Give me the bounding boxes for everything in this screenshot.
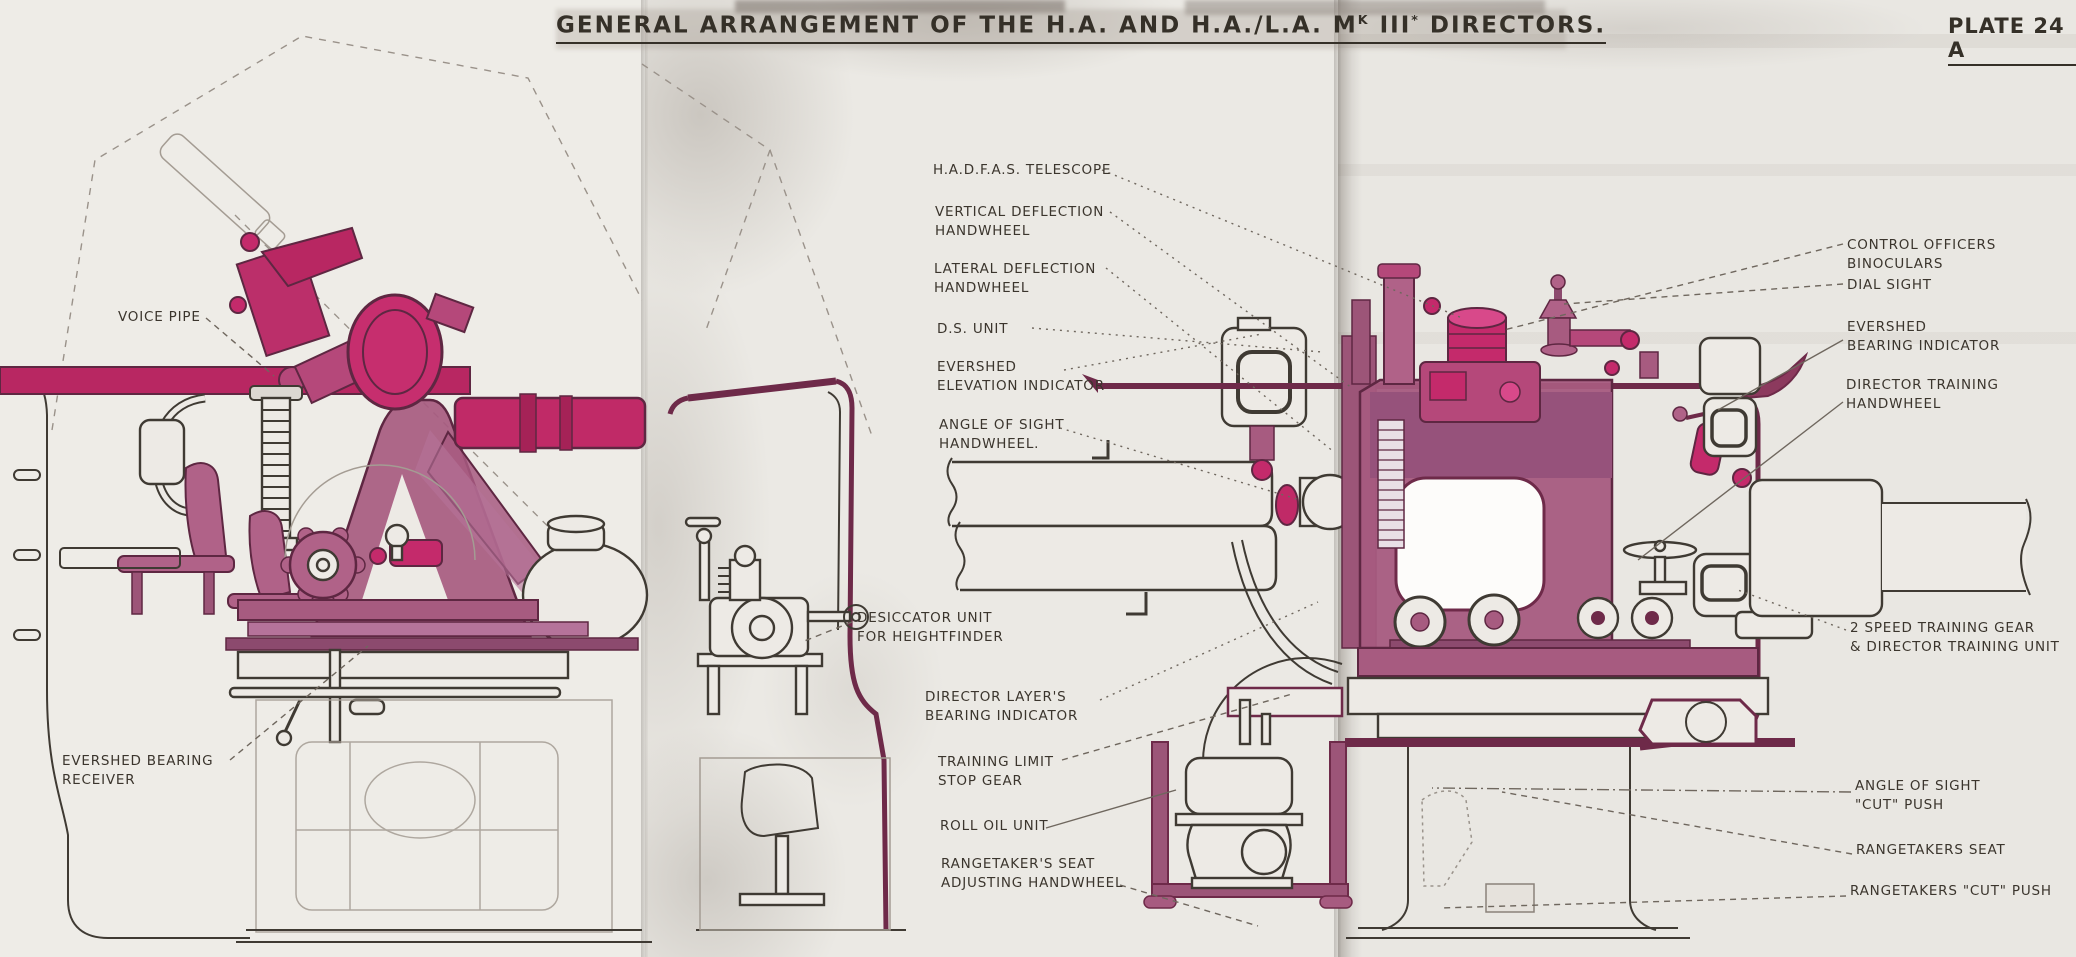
title-prefix: GENERAL ARRANGEMENT OF THE H.A. AND H.A.… — [556, 13, 1358, 39]
label-rangetakers-cut-push: RANGETAKERS "CUT" PUSH — [1850, 882, 2052, 901]
label-rangetakers-seat: RANGETAKERS SEAT — [1856, 841, 2006, 860]
label-desiccator-unit: DESICCATOR UNIT FOR HEIGHTFINDER — [857, 609, 1004, 647]
label-angle-of-sight-handwheel: ANGLE OF SIGHT HANDWHEEL. — [939, 416, 1064, 454]
label-evershed-bearing-indicator: EVERSHED BEARING INDICATOR — [1847, 318, 2000, 356]
title-suffix: DIRECTORS. — [1420, 13, 1606, 39]
label-evershed-elevation-indicator: EVERSHED ELEVATION INDICATOR — [937, 358, 1105, 396]
label-director-training-handwheel: DIRECTOR TRAINING HANDWHEEL — [1846, 376, 1999, 414]
label-two-speed-training-gear: 2 SPEED TRAINING GEAR & DIRECTOR TRAININ… — [1850, 619, 2060, 657]
title-mark-sup: K — [1358, 12, 1370, 27]
label-angle-of-sight-cut-push: ANGLE OF SIGHT "CUT" PUSH — [1855, 777, 1980, 815]
hood-section-view — [670, 318, 1357, 930]
title-star: * — [1411, 12, 1420, 27]
label-rangetakers-seat-adjusting-handwheel: RANGETAKER'S SEAT ADJUSTING HANDWHEEL — [941, 855, 1123, 893]
plate-title: GENERAL ARRANGEMENT OF THE H.A. AND H.A.… — [556, 12, 1606, 44]
label-ds-unit: D.S. UNIT — [937, 320, 1008, 339]
label-evershed-bearing-receiver: EVERSHED BEARING RECEIVER — [62, 752, 213, 790]
label-training-limit-stop-gear: TRAINING LIMIT STOP GEAR — [938, 753, 1054, 791]
label-director-layers-bearing-indicator: DIRECTOR LAYER'S BEARING INDICATOR — [925, 688, 1078, 726]
label-dial-sight: DIAL SIGHT — [1847, 276, 1932, 295]
plate-number: PLATE 24 A — [1948, 14, 2076, 66]
label-control-officers-binoculars: CONTROL OFFICERS BINOCULARS — [1847, 236, 2076, 274]
label-roll-oil-unit: ROLL OIL UNIT — [940, 817, 1048, 836]
label-lateral-deflection-handwheel: LATERAL DEFLECTION HANDWHEEL — [934, 260, 1096, 298]
label-hadfas-telescope: H.A.D.F.A.S. TELESCOPE — [933, 161, 1111, 180]
technical-drawing — [0, 0, 2076, 957]
label-voice-pipe: VOICE PIPE — [118, 308, 201, 327]
title-mark: III — [1370, 13, 1412, 39]
label-vertical-deflection-handwheel: VERTICAL DEFLECTION HANDWHEEL — [935, 203, 1104, 241]
plate-24a-scan: GENERAL ARRANGEMENT OF THE H.A. AND H.A.… — [0, 0, 2076, 957]
